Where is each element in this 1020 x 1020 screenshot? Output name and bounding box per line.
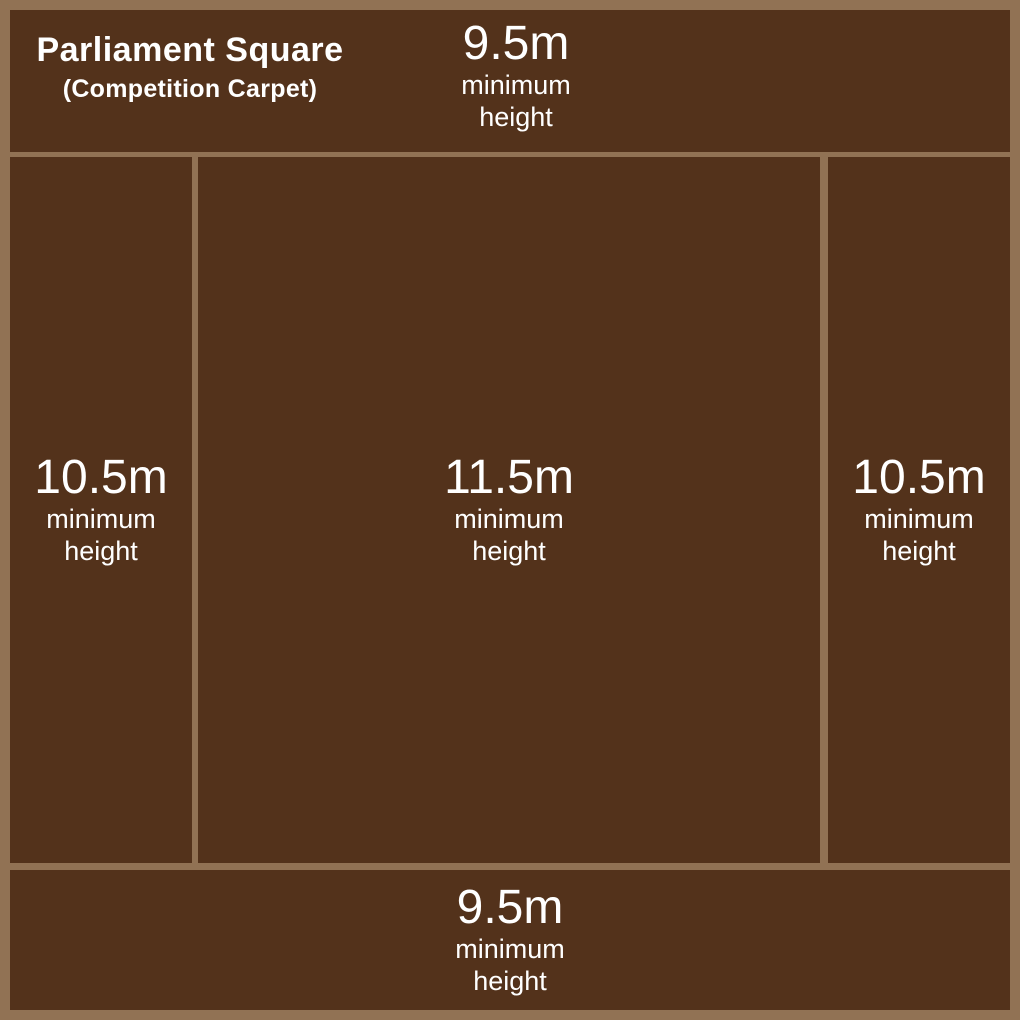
zone-bottom-strip: 9.5m minimum height	[10, 870, 1010, 1010]
min-height-label-bottom-1: minimum	[455, 933, 565, 965]
title-subtitle: (Competition Carpet)	[34, 75, 346, 104]
zone-left-measure: 10.5m minimum height	[34, 453, 167, 567]
min-height-label-bottom-2: height	[455, 965, 565, 997]
zone-right-column: 10.5m minimum height	[828, 157, 1010, 863]
min-height-label-center-1: minimum	[444, 503, 574, 535]
min-height-value-bottom: 9.5m	[455, 883, 565, 933]
min-height-label-right-1: minimum	[852, 503, 985, 535]
min-height-value-right: 10.5m	[852, 453, 985, 503]
min-height-label-left-1: minimum	[34, 503, 167, 535]
min-height-label-center-2: height	[444, 535, 574, 567]
min-height-label-left-2: height	[34, 535, 167, 567]
zone-center-measure: 11.5m minimum height	[444, 453, 574, 567]
min-height-label-top-1: minimum	[461, 69, 571, 101]
zone-right-measure: 10.5m minimum height	[852, 453, 985, 567]
min-height-value-left: 10.5m	[34, 453, 167, 503]
min-height-value-top: 9.5m	[461, 19, 571, 69]
zone-center-area: 11.5m minimum height	[198, 157, 820, 863]
zone-bottom-measure: 9.5m minimum height	[455, 883, 565, 997]
min-height-label-top-2: height	[461, 101, 571, 133]
diagram-title: Parliament Square (Competition Carpet)	[34, 30, 346, 104]
zone-left-column: 10.5m minimum height	[10, 157, 192, 863]
parliament-square-diagram: { "title": { "line1": "Parliament Square…	[0, 0, 1020, 1020]
zone-top-strip: Parliament Square (Competition Carpet) 9…	[10, 10, 1010, 152]
min-height-value-center: 11.5m	[444, 453, 574, 503]
min-height-label-right-2: height	[852, 535, 985, 567]
title-main: Parliament Square	[34, 30, 346, 71]
zone-top-measure: 9.5m minimum height	[461, 19, 571, 133]
